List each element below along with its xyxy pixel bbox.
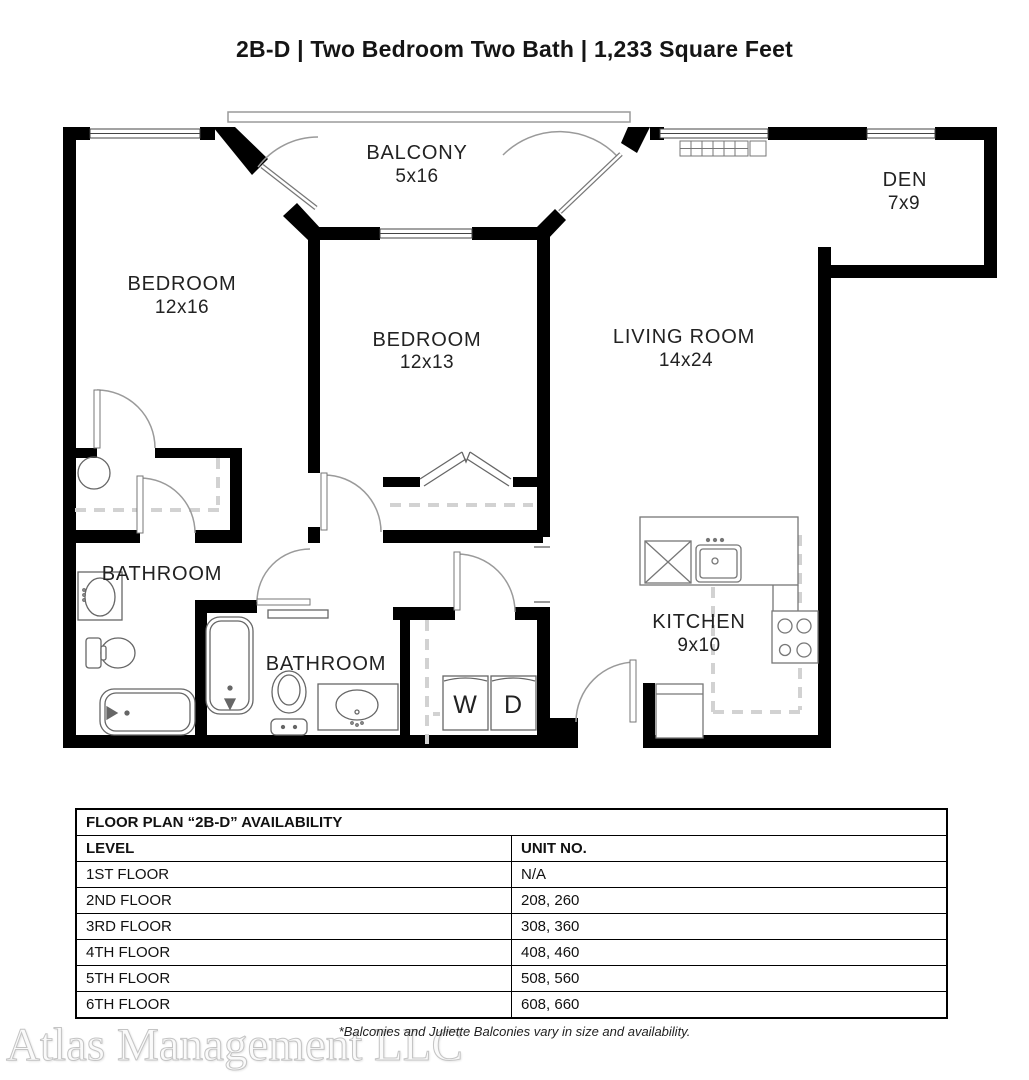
walls [63,127,997,748]
level-cell: 5TH FLOOR [76,966,512,992]
living-room-label: LIVING ROOM [613,326,755,348]
bedroom1-label: BEDROOM [128,273,237,295]
column-header-unit-no: UNIT NO. [512,836,948,862]
windows [90,129,935,238]
level-cell: 1ST FLOOR [76,862,512,888]
den-label: DEN [883,169,928,191]
floor-plan-page: 2B-D | Two Bedroom Two Bath | 1,233 Squa… [0,0,1029,1080]
toilet-tank [86,638,101,668]
closet-bifold-doors [420,452,511,486]
sink-basin [336,690,378,720]
column-header-level: LEVEL [76,836,512,862]
balcony-dims: 5x16 [395,166,438,187]
table-row: 1ST FLOOR N/A [76,862,947,888]
den-dims: 7x9 [888,193,920,214]
table-row: 6TH FLOOR 608, 660 [76,992,947,1019]
level-cell: 4TH FLOOR [76,940,512,966]
refrigerator [656,684,703,738]
floor-plan-drawing: BALCONY 5x16 DEN 7x9 BEDROOM 12x16 BEDRO… [0,0,1029,800]
washer-label: W [453,691,477,719]
bedroom1-dims: 12x16 [155,297,209,318]
closet-round-fixture [78,457,110,489]
units-cell: N/A [512,862,948,888]
baseboard-heater-icon [680,141,766,156]
units-cell: 408, 460 [512,940,948,966]
page-title: 2B-D | Two Bedroom Two Bath | 1,233 Squa… [0,36,1029,63]
kitchen-label: KITCHEN [652,611,745,633]
table-row: 2ND FLOOR 208, 260 [76,888,947,914]
stove [772,611,818,663]
shelf [268,610,328,618]
bedroom2-dims: 12x13 [400,352,454,373]
living-room-dims: 14x24 [659,350,713,371]
footnote: *Balconies and Juliette Balconies vary i… [0,1024,1029,1039]
level-cell: 2ND FLOOR [76,888,512,914]
units-cell: 508, 560 [512,966,948,992]
bathroom2-label: BATHROOM [266,653,386,675]
availability-table: FLOOR PLAN “2B-D” AVAILABILITY LEVEL UNI… [75,808,948,1019]
table-title: FLOOR PLAN “2B-D” AVAILABILITY [76,809,947,836]
bathroom1-fixtures [78,572,195,735]
kitchen-dims: 9x10 [677,635,720,656]
level-cell: 3RD FLOOR [76,914,512,940]
cased-opening-jambs [534,547,550,602]
units-cell: 608, 660 [512,992,948,1019]
toilet-base [271,719,307,735]
dryer-label: D [504,691,522,719]
balcony-railing [228,112,630,122]
level-cell: 6TH FLOOR [76,992,512,1019]
bedroom2-label: BEDROOM [373,329,482,351]
units-cell: 208, 260 [512,888,948,914]
bathroom1-label: BATHROOM [102,563,222,585]
table-row: 3RD FLOOR 308, 360 [76,914,947,940]
table-row: 4TH FLOOR 408, 460 [76,940,947,966]
balcony-label: BALCONY [366,142,467,164]
units-cell: 308, 360 [512,914,948,940]
table-row: 5TH FLOOR 508, 560 [76,966,947,992]
